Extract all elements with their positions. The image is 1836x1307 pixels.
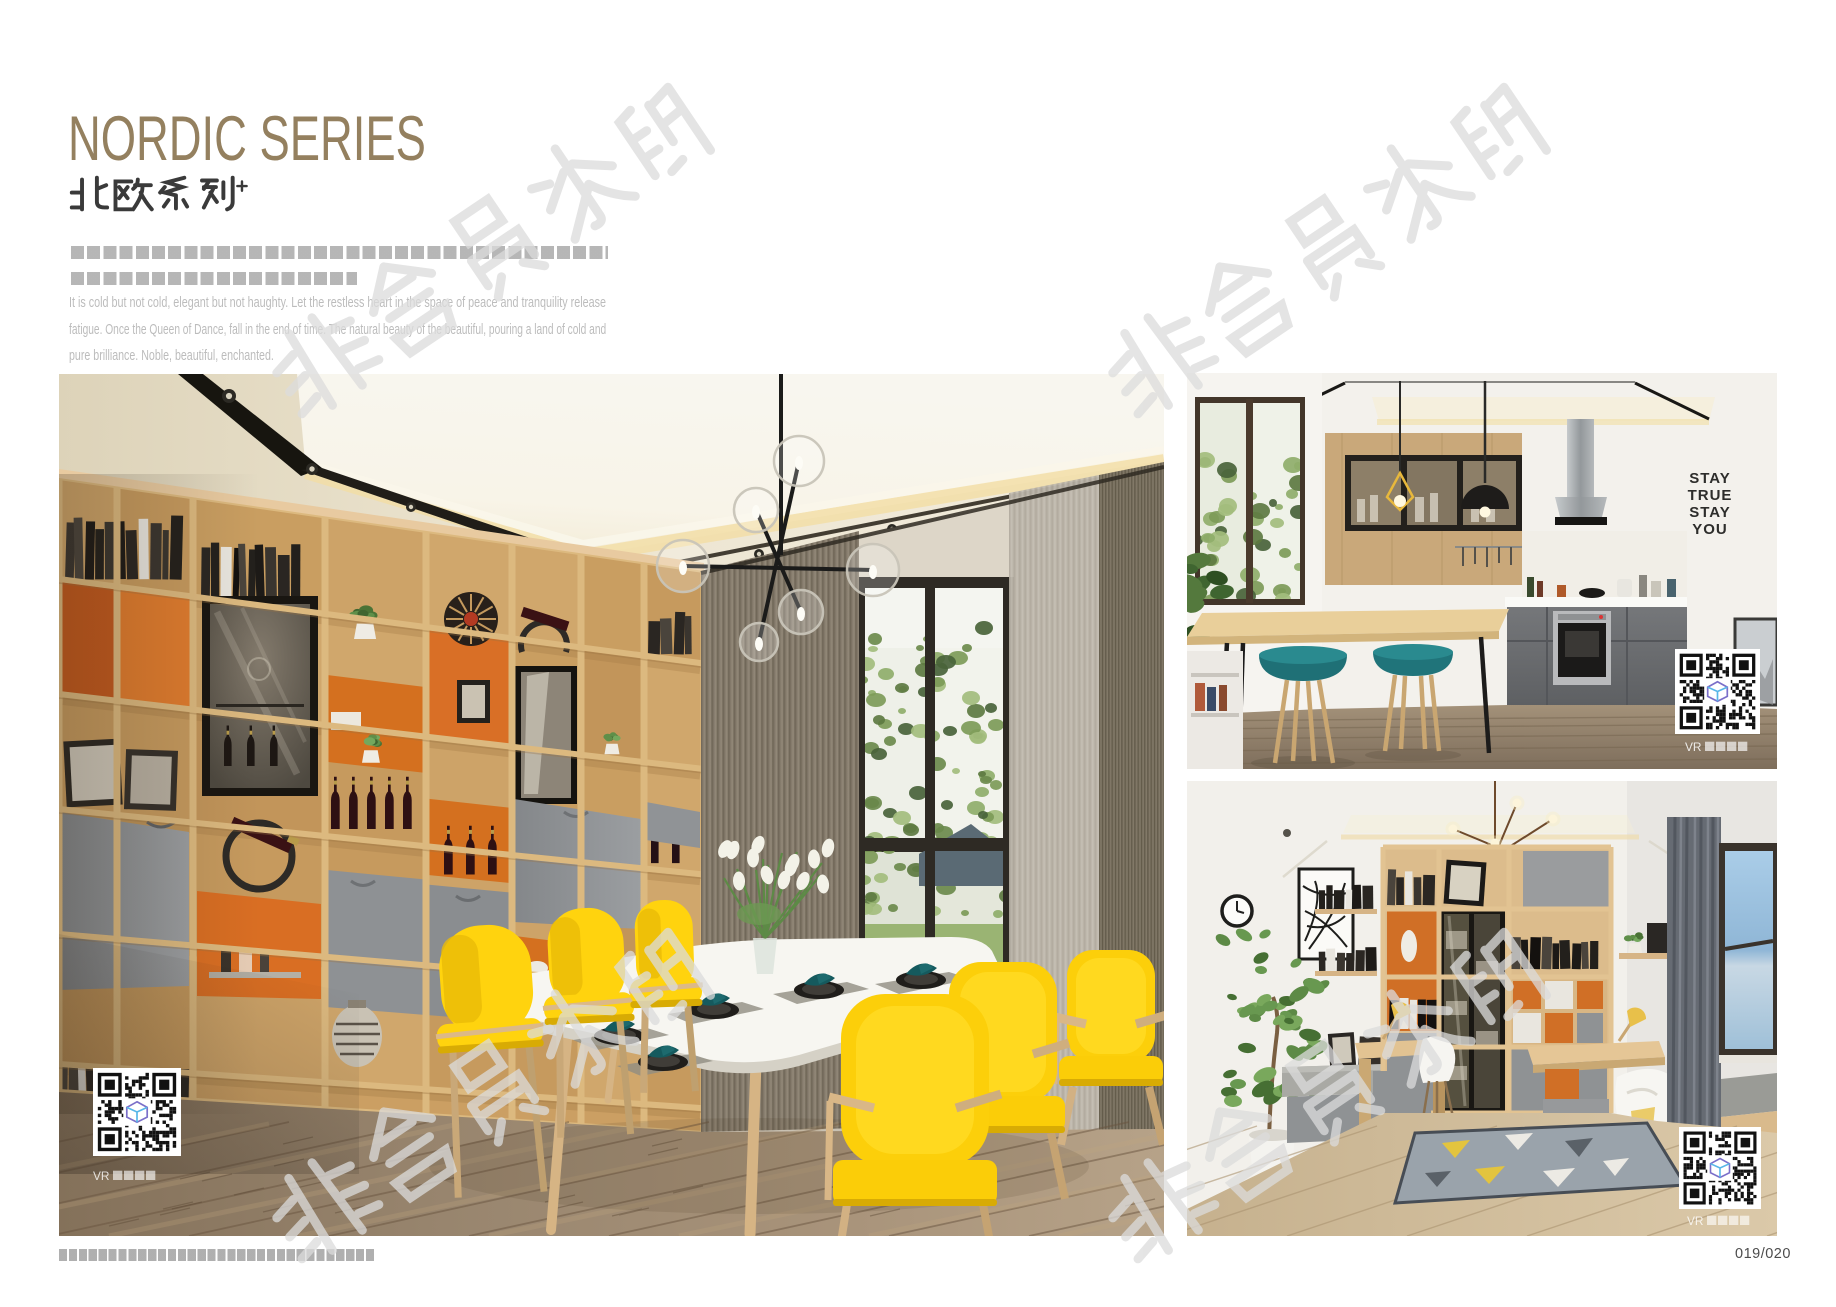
svg-text:VR: VR — [93, 1169, 110, 1183]
svg-text:YOU: YOU — [1692, 521, 1728, 538]
svg-text:VR: VR — [1685, 740, 1702, 754]
svg-text:STAY: STAY — [1689, 470, 1731, 487]
svg-text:STAY: STAY — [1689, 504, 1731, 521]
svg-text:VR: VR — [1687, 1214, 1704, 1228]
svg-text:TRUE: TRUE — [1688, 487, 1733, 504]
